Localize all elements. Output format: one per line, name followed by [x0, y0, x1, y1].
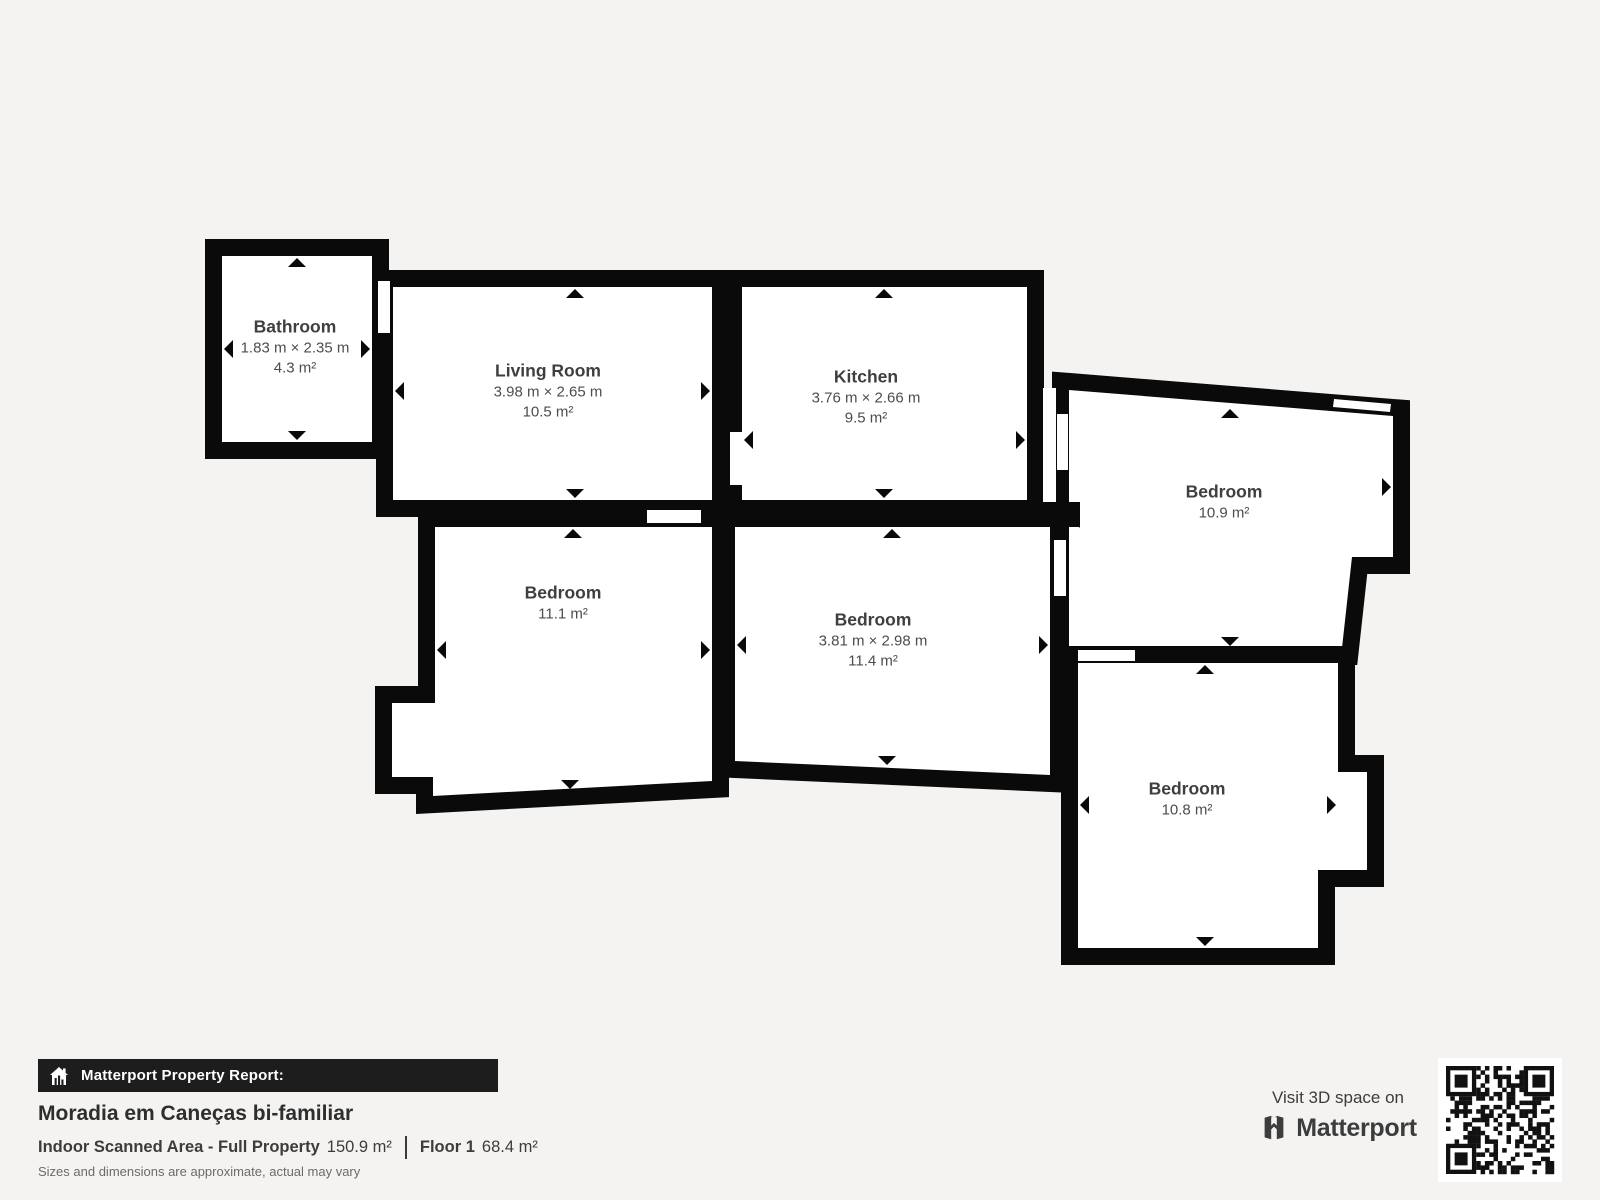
room-name: Bathroom [241, 316, 350, 339]
door-living-kitchen [730, 432, 742, 485]
room-area: 4.3 m² [241, 359, 350, 379]
property-title: Moradia em Caneças bi-familiar [38, 1102, 353, 1126]
room-area: 11.1 m² [525, 605, 602, 625]
room-dimensions: 1.83 m × 2.35 m [241, 339, 350, 359]
floor-value: 68.4 m² [482, 1138, 538, 1157]
qr-code [1438, 1058, 1562, 1182]
wall-patch [1038, 502, 1080, 527]
room-area: 10.8 m² [1149, 801, 1226, 821]
room-label-bedroom-bottom-right: Bedroom 10.8 m² [1149, 778, 1226, 821]
matterport-wordmark: Matterport [1296, 1114, 1417, 1143]
room-label-bedroom-right: Bedroom 10.9 m² [1186, 481, 1263, 524]
room-area: 11.4 m² [819, 652, 928, 672]
room-label-bedroom-middle: Bedroom 3.81 m × 2.98 m 11.4 m² [819, 609, 928, 672]
room-name: Bedroom [1149, 778, 1226, 801]
room-label-kitchen: Kitchen 3.76 m × 2.66 m 9.5 m² [812, 366, 921, 429]
room-name: Kitchen [812, 366, 921, 389]
door-middle-right [1054, 540, 1066, 596]
brand-row: Matterport [1248, 1113, 1428, 1143]
report-banner: Matterport Property Report: [38, 1059, 498, 1092]
room-label-bedroom-left: Bedroom 11.1 m² [525, 582, 602, 625]
scanned-area-label: Indoor Scanned Area - Full Property [38, 1138, 320, 1157]
scanned-area-value: 150.9 m² [327, 1138, 392, 1157]
door-bathroom [378, 281, 390, 333]
matterport-logo-icon [1259, 1113, 1289, 1143]
house-icon [49, 1066, 69, 1086]
room-area: 10.5 m² [494, 403, 603, 423]
floor-plan [0, 0, 1600, 1200]
door-bedrooms-right [1078, 650, 1135, 661]
room-label-living-room: Living Room 3.98 m × 2.65 m 10.5 m² [494, 360, 603, 423]
visit-3d-text: Visit 3D space on [1248, 1088, 1428, 1108]
room-name: Bedroom [1186, 481, 1263, 504]
door-living-bedroom [647, 510, 701, 523]
matterport-floorplan-report: Bathroom 1.83 m × 2.35 m 4.3 m² Living R… [0, 0, 1600, 1200]
room-area: 9.5 m² [812, 409, 921, 429]
room-shape-bedroom-left [392, 527, 712, 796]
room-label-bathroom: Bathroom 1.83 m × 2.35 m 4.3 m² [241, 316, 350, 379]
vertical-divider [405, 1136, 407, 1159]
room-name: Bedroom [525, 582, 602, 605]
floor-label: Floor 1 [420, 1138, 475, 1157]
room-dimensions: 3.76 m × 2.66 m [812, 389, 921, 409]
scanned-area-line: Indoor Scanned Area - Full Property 150.… [38, 1136, 538, 1159]
brand-block: Visit 3D space on Matterport [1248, 1088, 1428, 1143]
plan-gap-sliver [1043, 388, 1056, 502]
report-banner-label: Matterport Property Report: [81, 1067, 284, 1084]
room-area: 10.9 m² [1186, 504, 1263, 524]
room-dimensions: 3.98 m × 2.65 m [494, 383, 603, 403]
room-dimensions: 3.81 m × 2.98 m [819, 632, 928, 652]
qr-code-pattern [1438, 1058, 1562, 1182]
room-name: Living Room [494, 360, 603, 383]
room-name: Bedroom [819, 609, 928, 632]
door-right-upper [1057, 414, 1068, 470]
disclaimer-text: Sizes and dimensions are approximate, ac… [38, 1164, 360, 1179]
